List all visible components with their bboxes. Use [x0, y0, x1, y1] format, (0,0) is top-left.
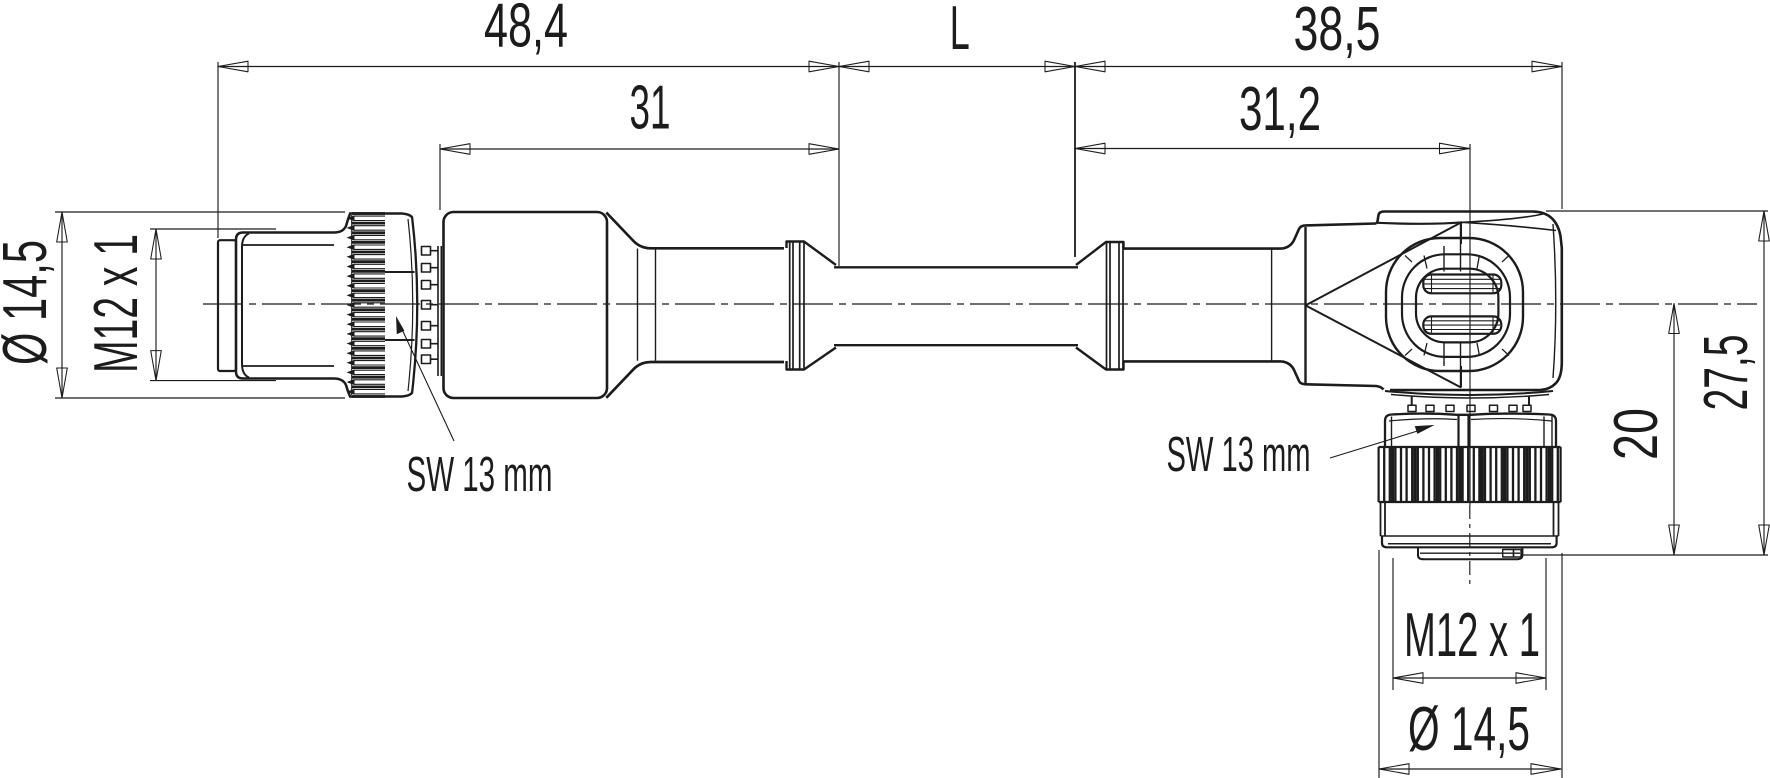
svg-text:27,5: 27,5: [1692, 335, 1761, 411]
svg-text:SW 13 mm: SW 13 mm: [407, 448, 553, 502]
svg-text:M12 x 1: M12 x 1: [82, 234, 151, 373]
svg-text:48,4: 48,4: [484, 0, 568, 61]
svg-text:Ø 14,5: Ø 14,5: [1408, 695, 1530, 764]
svg-text:M12 x 1: M12 x 1: [1404, 601, 1540, 670]
svg-text:20: 20: [1602, 408, 1671, 460]
svg-text:L: L: [950, 0, 970, 63]
svg-text:SW 13 mm: SW 13 mm: [1167, 428, 1311, 482]
svg-text:31: 31: [630, 74, 671, 143]
svg-text:38,5: 38,5: [1294, 0, 1381, 64]
svg-text:Ø 14,5: Ø 14,5: [0, 240, 60, 365]
svg-text:31,2: 31,2: [1239, 75, 1321, 144]
